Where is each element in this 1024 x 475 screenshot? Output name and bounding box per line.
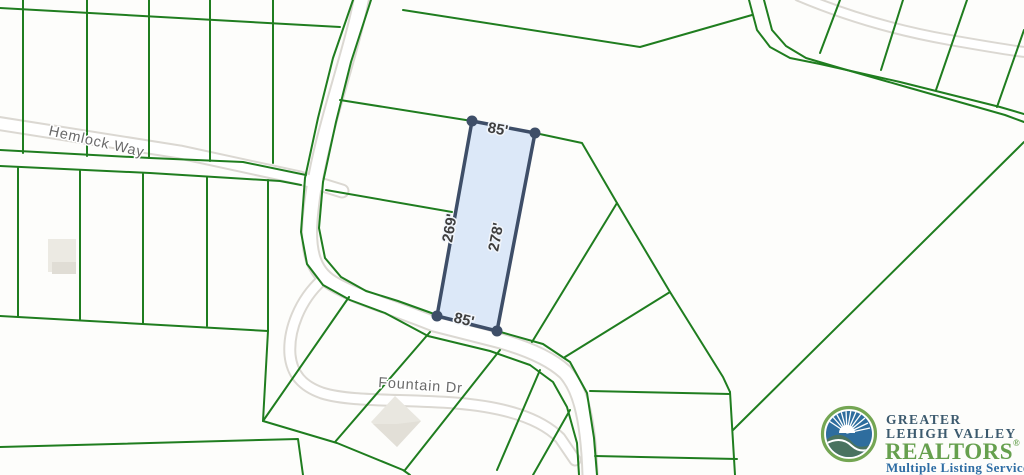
highlighted-parcel[interactable]: 85' 269' 278' 85' [432,116,541,337]
logo-line1: GREATER [886,412,962,427]
map-viewport[interactable]: 85' 269' 278' 85' Hemlock Way Fountain D… [0,0,1024,475]
parcel-corner-marker [530,128,541,139]
logo-tagline: Multiple Listing Service [886,460,1024,475]
glvr-logo: GREATER LEHIGH VALLEY REALTORS ® Multipl… [822,407,1024,475]
parcel-corner-marker [492,326,503,337]
parcel-corner-marker [467,116,478,127]
road-fountain-dr [290,280,575,460]
building-footprint-shade [373,421,421,447]
street-label-fountain-dr: Fountain Dr [378,375,463,397]
buildings [48,239,421,447]
logo-registered-mark: ® [1013,438,1020,448]
building-footprint-shadow [52,262,76,274]
parcel-corner-marker [432,311,443,322]
plat-map-canvas[interactable]: 85' 269' 278' 85' Hemlock Way Fountain D… [0,0,1024,475]
